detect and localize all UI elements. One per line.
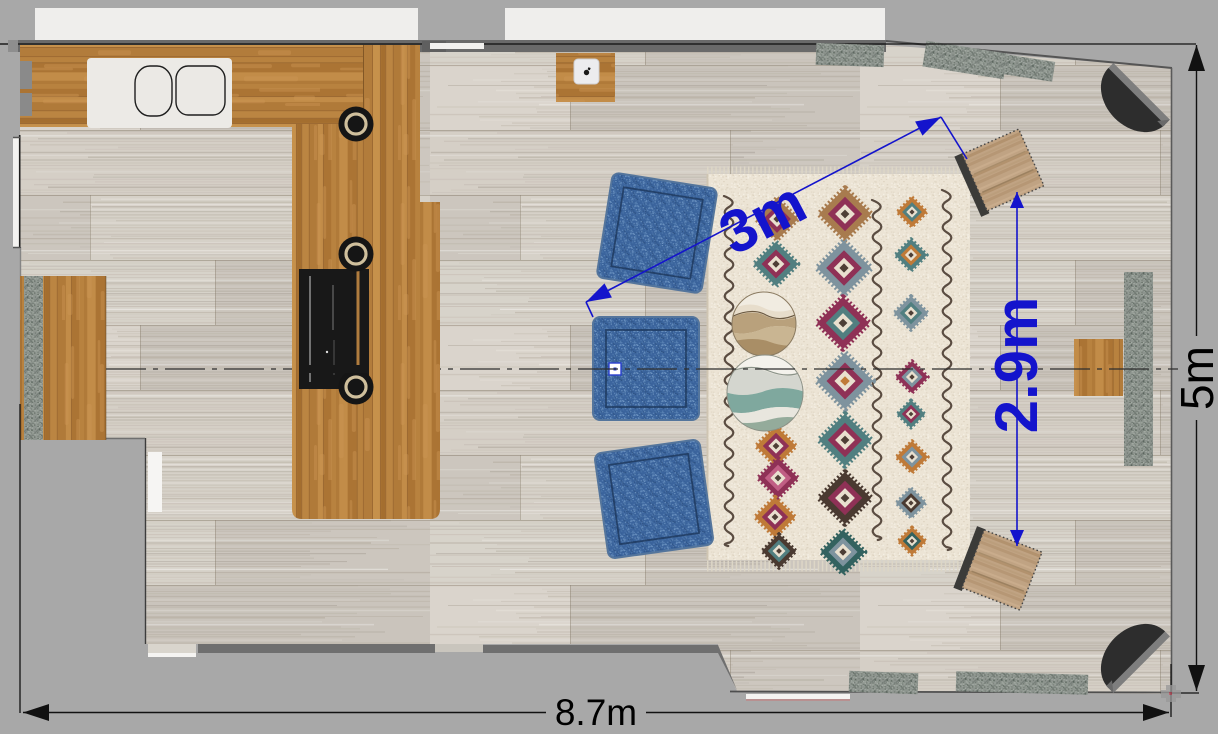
svg-text:2.9m: 2.9m <box>983 297 1050 434</box>
svg-text:5m: 5m <box>1171 346 1218 410</box>
svg-text:8.7m: 8.7m <box>555 692 637 733</box>
